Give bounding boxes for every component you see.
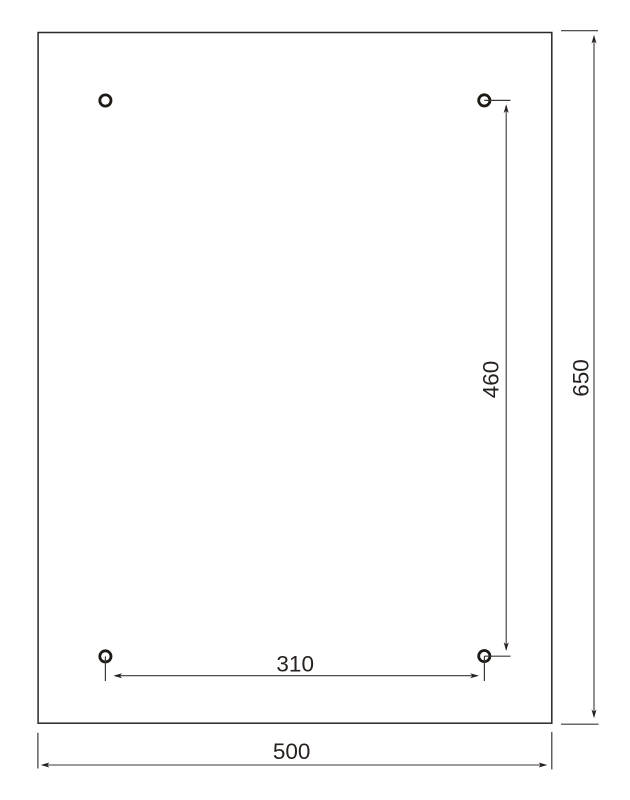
svg-text:310: 310 (276, 652, 314, 677)
svg-text:650: 650 (569, 359, 594, 397)
svg-text:460: 460 (478, 361, 503, 399)
svg-text:500: 500 (273, 739, 311, 764)
